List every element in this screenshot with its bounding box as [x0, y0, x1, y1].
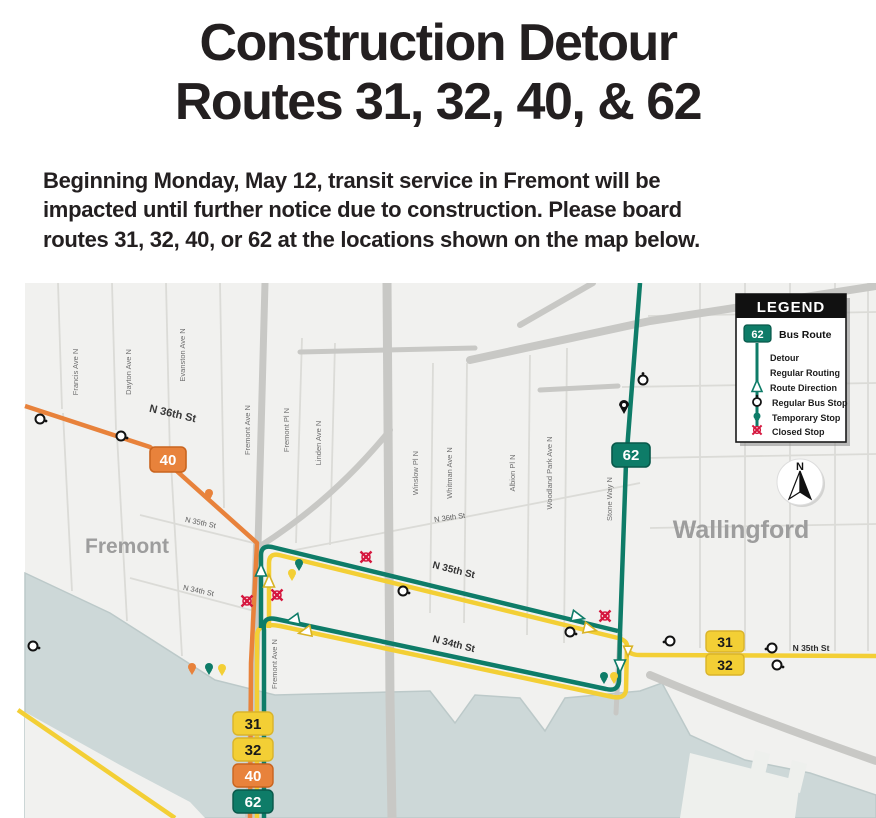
svg-text:40: 40 [160, 452, 177, 469]
street-label-fremont-pl: Fremont Pl N [282, 408, 291, 452]
svg-text:32: 32 [717, 657, 733, 673]
closed-stop-icon [272, 590, 283, 601]
street-label-n35th-right: N 35th St [793, 643, 830, 653]
route-31-badge-east: 31 [706, 631, 744, 652]
flyer-page: Construction Detour Routes 31, 32, 40, &… [0, 0, 876, 818]
street-label-winslow: Winslow Pl N [411, 451, 420, 495]
stack-40: 40 [245, 768, 262, 785]
page-title: Construction Detour Routes 31, 32, 40, &… [0, 14, 876, 133]
title-line-2: Routes 31, 32, 40, & 62 [0, 73, 876, 132]
closed-stop-icon [361, 552, 372, 563]
street-label-linden: Linden Ave N [314, 421, 323, 465]
closed-stop-icon [242, 596, 253, 607]
legend-bus-route-label: Bus Route [779, 329, 832, 341]
street-label-woodland: Woodland Park Ave N [545, 436, 554, 509]
legend-temporary-stop-label: Temporary Stop [772, 413, 841, 423]
street-label-whitman: Whitman Ave N [445, 447, 454, 499]
svg-text:62: 62 [623, 447, 640, 464]
route-62-badge: 62 [612, 443, 650, 467]
legend-detour-label: Detour [770, 353, 799, 363]
legend-badge-number: 62 [751, 329, 763, 341]
closed-stop-icon [600, 611, 611, 622]
legend-closed-stop-icon [752, 425, 761, 434]
neighborhood-label-wallingford: Wallingford [673, 516, 810, 544]
route-40-badge: 40 [150, 447, 186, 472]
intro-line-2: impacted until further notice due to con… [43, 195, 843, 224]
street-label-stone-way: Stone Way N [605, 477, 614, 521]
stack-32: 32 [245, 742, 262, 759]
legend-regular-stop-label: Regular Bus Stop [772, 398, 848, 408]
neighborhood-label-fremont: Fremont [85, 535, 169, 558]
intro-line-3: routes 31, 32, 40, or 62 at the location… [43, 225, 843, 254]
legend-regular-routing-label: Regular Routing [770, 368, 840, 378]
street-label-francis: Francis Ave N [71, 349, 80, 396]
svg-text:31: 31 [717, 634, 733, 650]
route-32-badge-east: 32 [706, 654, 744, 675]
street-label-fremont-ave-south: Fremont Ave N [270, 639, 279, 689]
street-label-evanston: Evanston Ave N [178, 328, 187, 381]
legend-title: LEGEND [757, 299, 826, 316]
street-label-dayton: Dayton Ave N [124, 349, 133, 395]
intro-line-1: Beginning Monday, May 12, transit servic… [43, 166, 843, 195]
intro-text: Beginning Monday, May 12, transit servic… [43, 166, 843, 254]
street-label-albion: Albion Pl N [508, 454, 517, 491]
aurora-ave-road [387, 283, 392, 818]
title-line-1: Construction Detour [0, 14, 876, 73]
detour-map: Francis Ave N Dayton Ave N Evanston Ave … [0, 283, 876, 818]
stack-31: 31 [245, 716, 262, 733]
legend: LEGEND 62 Bus Route Detour Regular Routi… [736, 294, 850, 446]
street-label-fremont-ave: Fremont Ave N [243, 405, 252, 455]
stack-62: 62 [245, 794, 262, 811]
legend-closed-stop-label: Closed Stop [772, 427, 825, 437]
legend-route-direction-label: Route Direction [770, 383, 837, 393]
